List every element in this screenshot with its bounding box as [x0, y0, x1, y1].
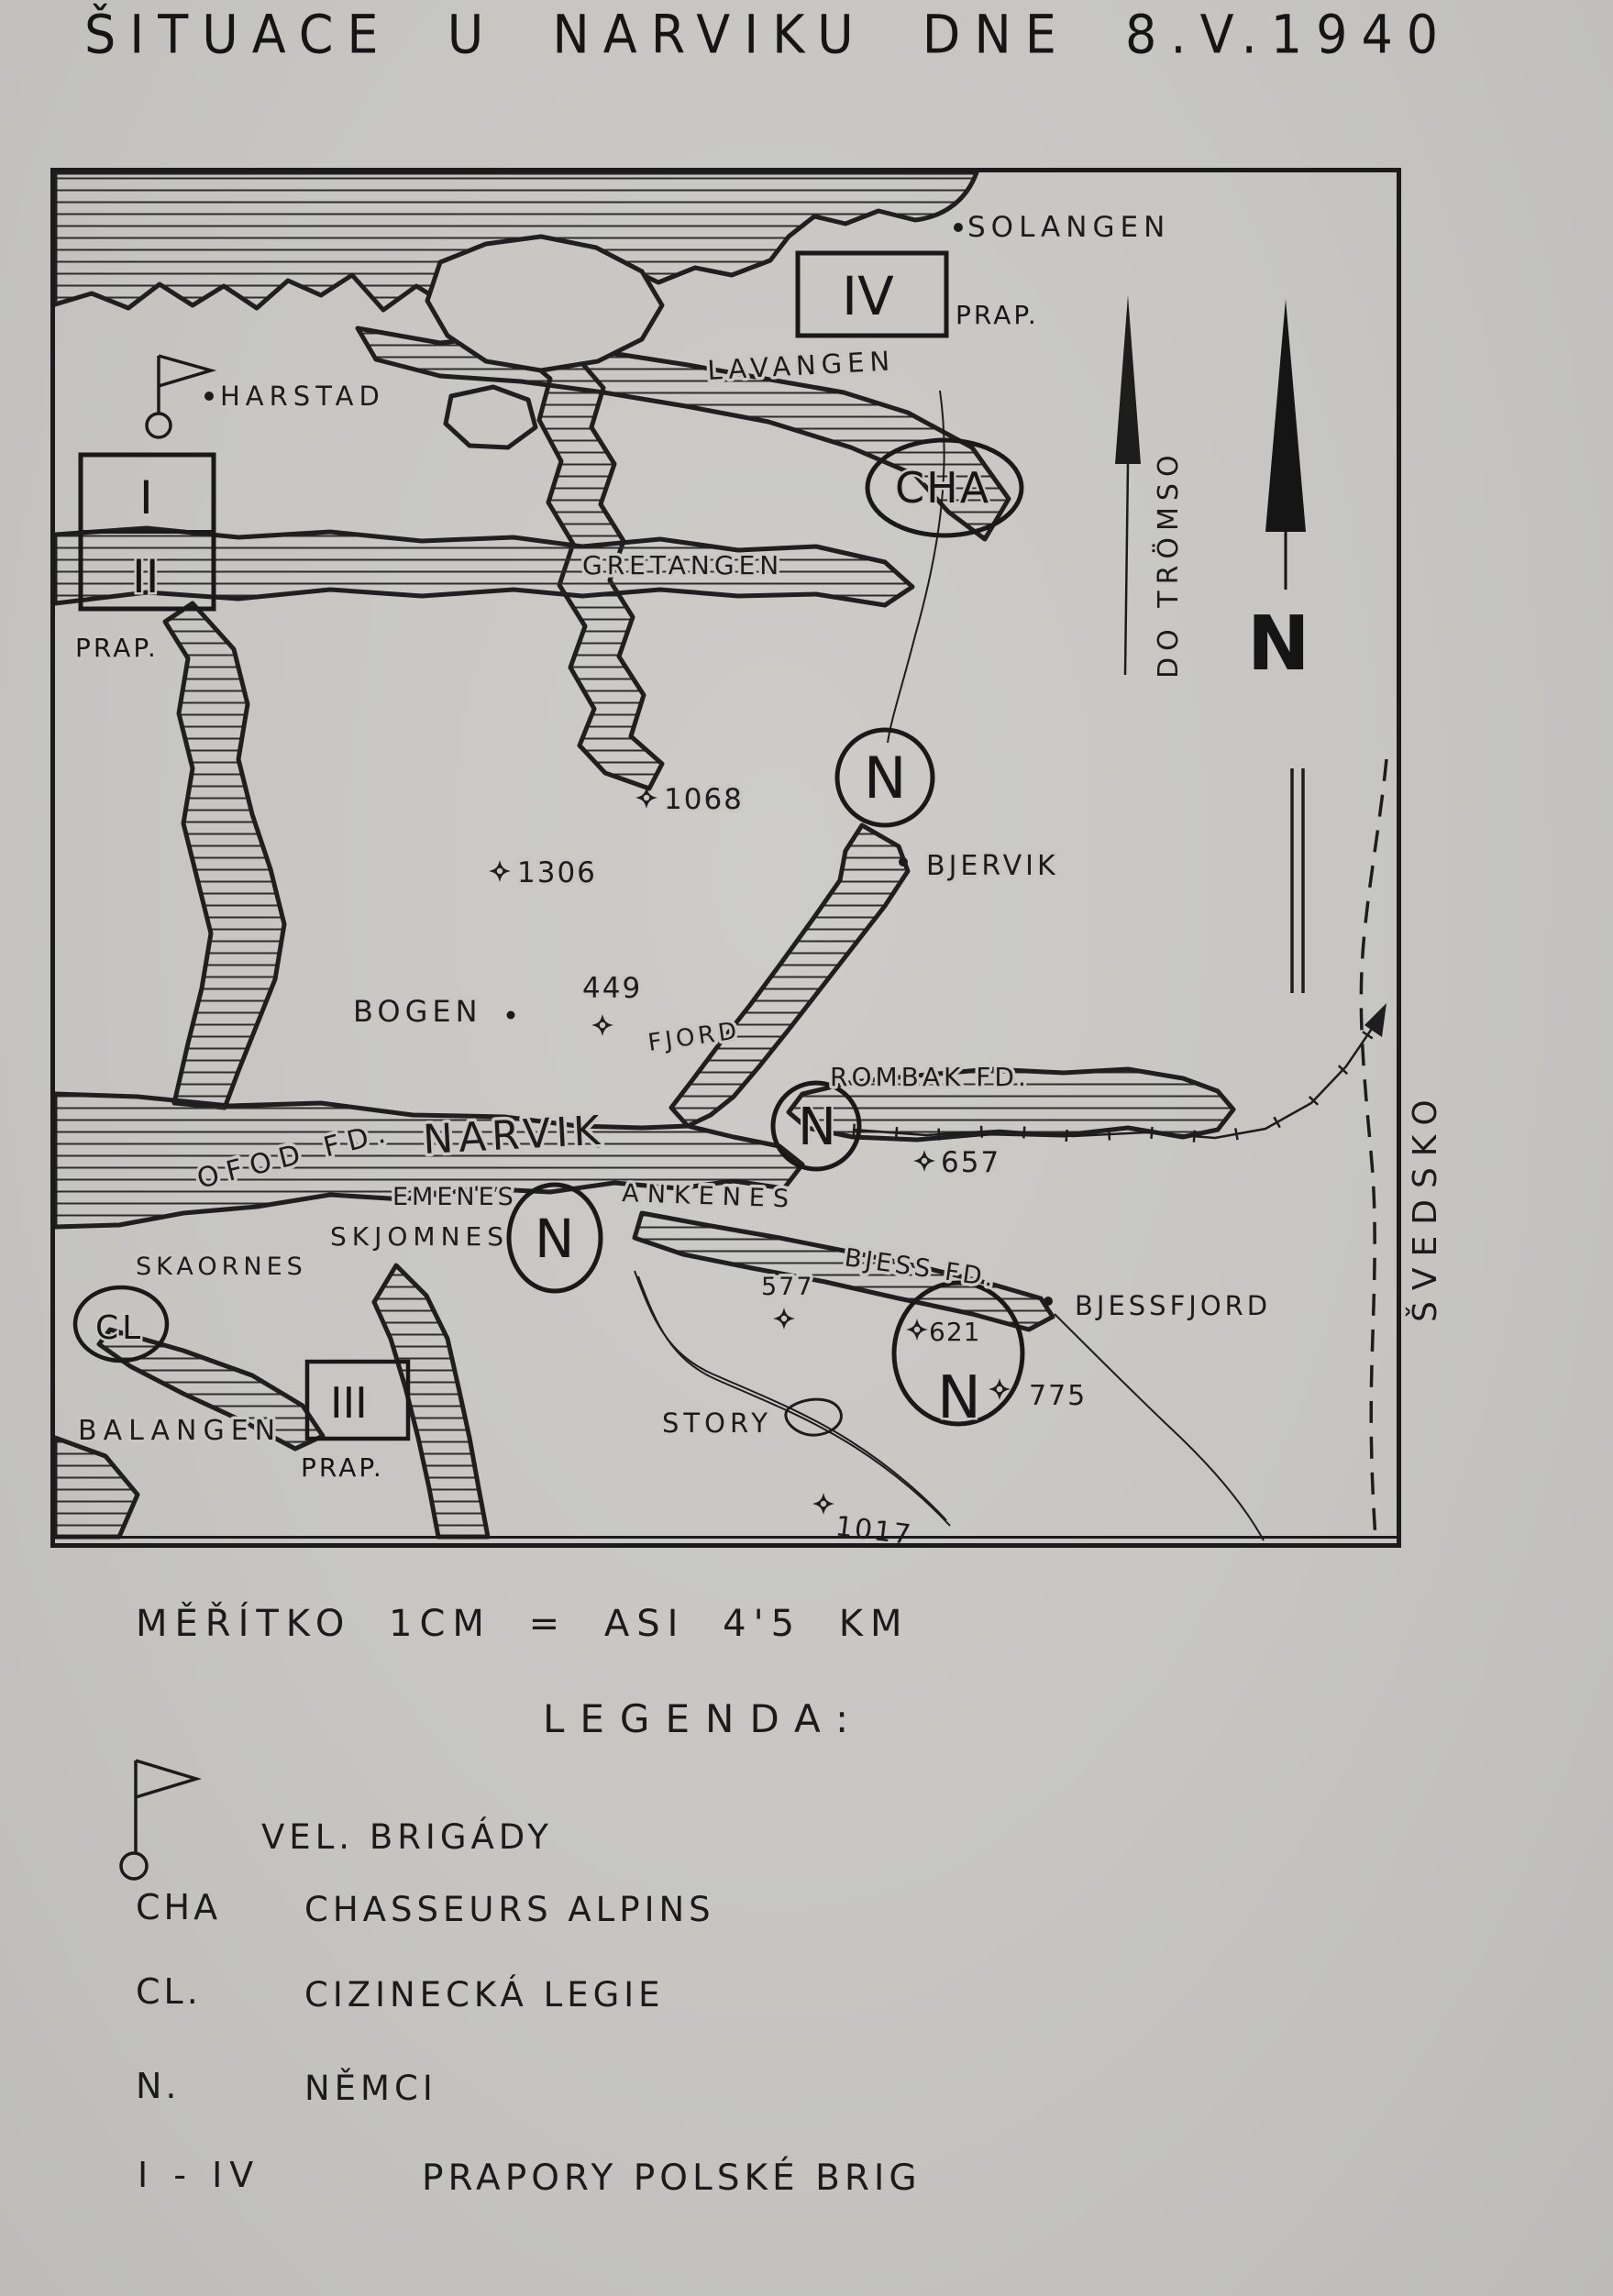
scale-note: MĚŘÍTKO 1CM = ASI 4'5 KM	[136, 1603, 910, 1645]
north-arrow-icon	[1265, 299, 1306, 532]
place-label-story: STORY	[662, 1407, 772, 1439]
map-canvas: DO TRÖMSO N IV PRAP. I II PRAP. III PRAP…	[55, 172, 1397, 1543]
place-label-bjessfjord: BJESSFJORD	[1075, 1290, 1271, 1321]
compass-n-label: N	[1247, 601, 1310, 688]
unit-label-ii: II	[132, 550, 160, 603]
place-label-bogen: BOGEN	[353, 994, 482, 1029]
place-label-skjomnes: SKJOMNES	[330, 1221, 509, 1252]
place-label-rombak-fd: ROMBAK FD.	[830, 1062, 1030, 1092]
legend-item-cha-label: CHASSEURS ALPINS	[304, 1890, 715, 1929]
summit-775: 775	[1029, 1380, 1087, 1412]
summit-657: 657	[941, 1146, 1000, 1179]
place-label-emenes: EMENES	[392, 1183, 517, 1211]
summit-1068: 1068	[664, 783, 744, 816]
brigade-flag-legend-icon	[116, 1750, 216, 1887]
summit-1017: 1017	[834, 1510, 914, 1543]
unit-label-iv: IV	[842, 265, 894, 327]
summit-621: 621	[929, 1317, 980, 1347]
legend-item-cl-label: CIZINECKÁ LEGIE	[304, 1975, 665, 2015]
summit-577: 577	[761, 1273, 814, 1301]
unit-label-i-ii-prap: PRAP.	[75, 633, 159, 663]
summit-449: 449	[582, 972, 642, 1005]
place-label-bjervik: BJERVIK	[926, 850, 1059, 882]
svedsko-border-label: ŠVEDSKO	[1407, 1088, 1444, 1322]
railway-border-arrow	[1364, 1003, 1387, 1037]
unit-label-iv-prap: PRAP.	[956, 300, 1039, 330]
unit-label-n-bjervik: N	[864, 745, 906, 811]
swedish-border-dashed	[1361, 759, 1387, 1539]
scanned-map-page: { "title": "ŠITUACE U NARVIKU DNE 8.V.19…	[0, 0, 1613, 2296]
unit-label-iii-prap: PRAP.	[301, 1452, 384, 1483]
legend-item-prapory-label: PRAPORY POLSKÉ BRIG	[422, 2158, 922, 2199]
place-label-gretangen: GRETANGEN	[582, 550, 783, 580]
place-label-harstad: HARSTAD	[220, 381, 385, 412]
unit-label-n-narvik: N	[798, 1098, 836, 1157]
legend-item-brigady-label: VEL. BRIGÁDY	[261, 1817, 553, 1857]
unit-label-iii: III	[330, 1378, 368, 1428]
place-label-skaornes: SKAORNES	[136, 1253, 307, 1281]
unit-label-cl: CL	[95, 1309, 144, 1347]
lake-story	[786, 1399, 842, 1435]
unit-label-i: I	[139, 471, 153, 524]
unit-label-n-621: N	[937, 1364, 981, 1432]
legend-item-prapory-key: I - IV	[138, 2155, 260, 2195]
legend-item-cl-key: CL.	[136, 1971, 202, 2012]
place-label-balangen: BALANGEN	[78, 1415, 282, 1447]
unit-label-cha: CHA	[895, 463, 990, 513]
brigade-flag-icon	[147, 356, 211, 437]
legend-item-n-label: NĚMCI	[304, 2069, 437, 2108]
legend-item-cha-key: CHA	[136, 1887, 221, 1927]
legend-item-n-key: N.	[136, 2066, 181, 2106]
place-label-lavangen: LAVANGEN	[707, 345, 896, 386]
do-tromso-arrow: DO TRÖMSO	[1115, 295, 1185, 679]
legend-heading: LEGENDA:	[543, 1696, 864, 1741]
do-tromso-label: DO TRÖMSO	[1152, 448, 1185, 679]
road-narvik-south	[635, 1271, 946, 1520]
gretangen-fjord	[55, 528, 912, 605]
unit-label-n-ankenes: N	[535, 1208, 574, 1270]
skjomen-fjord	[374, 1265, 488, 1537]
road-bjessfjord	[1055, 1314, 1264, 1540]
place-label-solangen: SOLANGEN	[967, 211, 1170, 244]
page-title: ŠITUACE U NARVIKU DNE 8.V.1940	[84, 3, 1588, 65]
map-frame: DO TRÖMSO N IV PRAP. I II PRAP. III PRAP…	[50, 168, 1401, 1548]
place-label-ankenes: ANKENES	[622, 1179, 798, 1214]
north-compass: N	[1247, 299, 1310, 993]
left-channel	[165, 603, 284, 1108]
summit-1306: 1306	[517, 856, 597, 889]
place-label-narvik: NARVIK	[422, 1108, 607, 1164]
corner-inlet	[55, 1438, 138, 1537]
